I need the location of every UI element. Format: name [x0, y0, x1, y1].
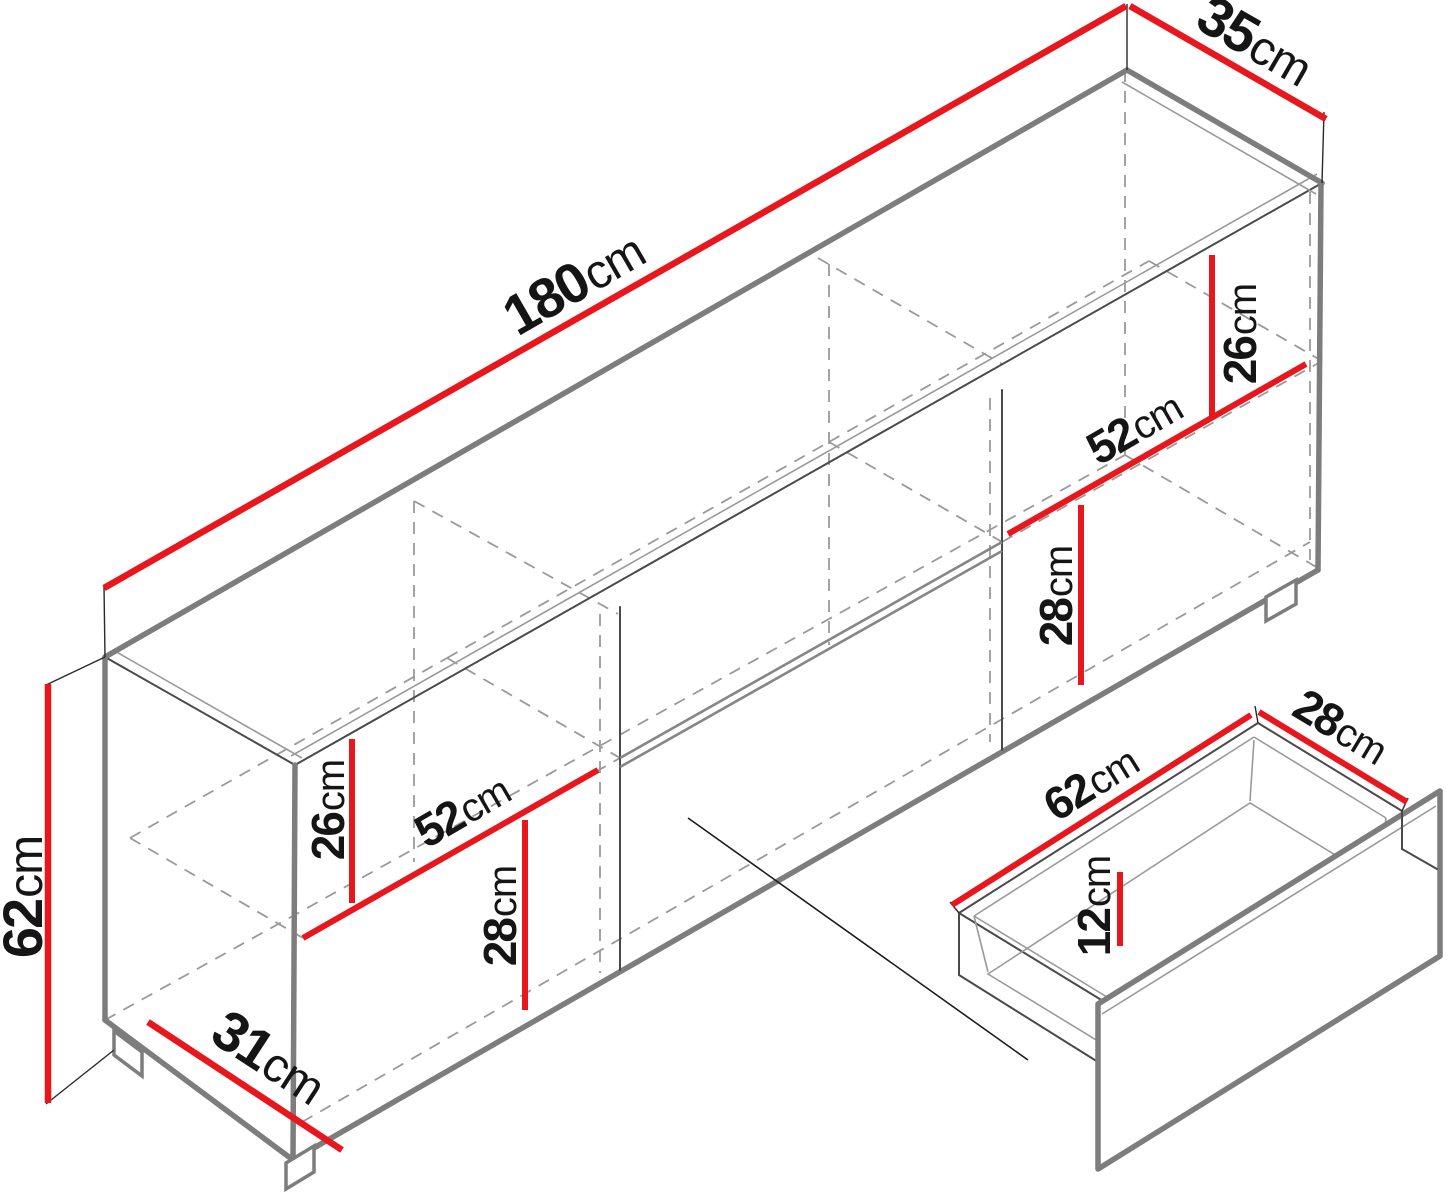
dim-label-left-lower-unit: cm	[481, 866, 525, 917]
diagram-canvas: 180cm 35cm 62cm 31cm 26cm 52cm 28cm 26cm…	[0, 0, 1455, 1200]
drawer-corner-joint-rear	[1250, 740, 1254, 801]
edge-top-left-inner	[113, 650, 302, 758]
furniture-dimension-diagram: 180cm 35cm 62cm 31cm 26cm 52cm 28cm 26cm…	[0, 0, 1455, 1200]
dim-label-drawer-height: 12cm	[1068, 856, 1120, 957]
hidden-middle-shelf-side	[829, 442, 1002, 542]
edge-top-front-inner	[291, 174, 1317, 756]
edge-vertical-front-right	[1318, 183, 1321, 570]
cabinet-hidden-edges	[105, 70, 1322, 1122]
hidden-right-divider-top	[818, 258, 1002, 364]
dim-label-right-lower-height: 28cm	[1030, 546, 1082, 647]
dim-label-left-upper-unit: cm	[309, 760, 353, 811]
dim-label-height-value: 62	[0, 900, 54, 958]
dim-label-height-unit: cm	[0, 836, 53, 898]
ext-height-top	[46, 657, 105, 685]
ext-depth-right	[1322, 112, 1324, 183]
dim-label-right-upper-unit: cm	[1221, 284, 1265, 335]
dim-label-right-lower-unit: cm	[1037, 546, 1081, 597]
hidden-bottom-rear-right	[1125, 455, 1318, 568]
drawer-side-left-bottom	[959, 975, 1098, 1062]
foot-front-left	[286, 1146, 314, 1189]
drawer-leader-line	[688, 818, 1028, 1060]
edge-top-front	[295, 183, 1322, 765]
hidden-left-shelf-side-right	[447, 658, 620, 758]
edge-top-rear	[105, 70, 1127, 657]
dim-label-height: 62cm	[0, 836, 54, 958]
dim-label-drawer-height-unit: cm	[1075, 856, 1119, 907]
dim-line-width	[104, 6, 1126, 588]
hidden-bottom-rear-long	[105, 455, 1125, 1020]
dim-label-left-upper-height: 26cm	[302, 760, 354, 861]
drawer-front-panel	[1098, 791, 1440, 1169]
middle-shelf-front-edge-upper	[620, 542, 1002, 758]
dim-line-right-width	[1008, 364, 1306, 534]
dim-label-left-upper-value: 26	[302, 813, 354, 861]
ext-height-bottom	[46, 1050, 114, 1104]
edge-top-left	[105, 657, 295, 765]
foot-front-right	[1266, 580, 1296, 621]
dim-label-drawer-height-value: 12	[1068, 909, 1120, 957]
dim-label-right-lower-value: 28	[1030, 598, 1082, 647]
hidden-left-divider-top	[414, 501, 618, 614]
hidden-middle-shelf-rear	[447, 442, 829, 658]
dim-label-left-lower-value: 28	[474, 918, 526, 967]
hidden-right-shelf-rear	[829, 261, 1149, 442]
dim-label-right-upper-value: 26	[1214, 337, 1266, 385]
hidden-left-shelf-side-left	[130, 838, 303, 938]
hidden-left-shelf-rear	[130, 658, 447, 838]
drawer-corner-joint-left	[974, 916, 988, 972]
ext-width-left	[104, 586, 105, 657]
middle-shelf-front-edge-lower	[620, 551, 1002, 767]
dim-label-left-width: 52cm	[405, 763, 518, 858]
dim-label-width: 180cm	[492, 217, 655, 347]
dim-label-left-lower-height: 28cm	[474, 866, 526, 967]
drawer-detail	[959, 723, 1440, 1169]
dim-label-right-upper-height: 26cm	[1214, 284, 1266, 385]
